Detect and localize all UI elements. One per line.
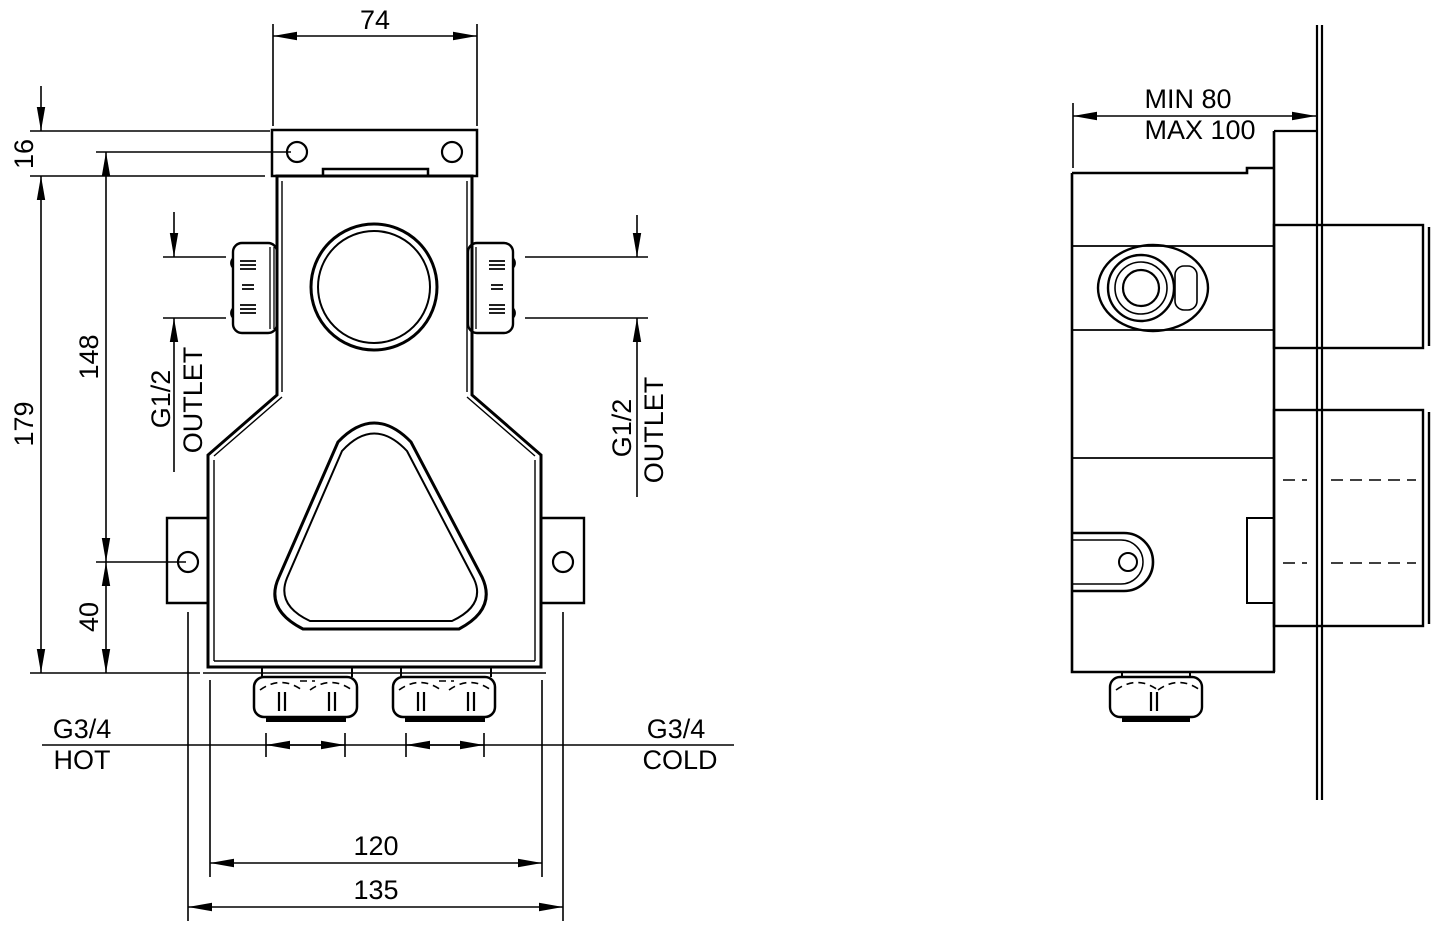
label-outlet-left-text: OUTLET bbox=[178, 347, 208, 454]
label-outlet-left-thread: G1/2 bbox=[146, 370, 176, 429]
label-hot-text: HOT bbox=[54, 745, 111, 775]
front-view bbox=[167, 130, 584, 722]
label-cold-thread: G3/4 bbox=[647, 714, 706, 744]
valve-installation-drawing: 74 16 179 148 40 G1/2 OUTLET G1/2 OUTLET… bbox=[0, 0, 1445, 934]
label-dim-40: 40 bbox=[74, 602, 104, 632]
dim-top-width bbox=[273, 24, 477, 126]
label-dim-74: 74 bbox=[360, 5, 390, 35]
wall-line bbox=[1317, 25, 1322, 800]
cartridge-opening bbox=[311, 224, 437, 350]
inlet-nut-side bbox=[1110, 672, 1202, 722]
label-outlet-right-text: OUTLET bbox=[639, 377, 669, 484]
inlet-nut-hot bbox=[254, 667, 357, 722]
front-view-dimensions bbox=[30, 24, 734, 921]
label-depth-max: MAX 100 bbox=[1144, 115, 1255, 145]
fixing-tab-right bbox=[541, 518, 584, 603]
inlet-nut-cold bbox=[393, 667, 495, 722]
trim-box-bottom bbox=[1274, 410, 1429, 626]
technical-drawing-page: 74 16 179 148 40 G1/2 OUTLET G1/2 OUTLET… bbox=[0, 0, 1445, 934]
label-dim-120: 120 bbox=[353, 831, 398, 861]
bracket-screw-hole-right bbox=[442, 142, 462, 162]
outlet-fitting-left bbox=[231, 243, 277, 333]
label-outlet-right-thread: G1/2 bbox=[607, 399, 637, 458]
label-dim-179: 179 bbox=[9, 401, 39, 446]
diverter-opening bbox=[275, 423, 486, 629]
label-cold-text: COLD bbox=[642, 745, 717, 775]
label-dim-16: 16 bbox=[9, 139, 39, 169]
fixing-tab-hole-right bbox=[553, 552, 573, 572]
outlet-boss-side bbox=[1098, 245, 1208, 331]
drawing-labels: 74 16 179 148 40 G1/2 OUTLET G1/2 OUTLET… bbox=[9, 5, 1256, 905]
label-dim-135: 135 bbox=[353, 875, 398, 905]
label-hot-thread: G3/4 bbox=[53, 714, 112, 744]
label-depth-min: MIN 80 bbox=[1144, 84, 1231, 114]
fixing-tab-left bbox=[167, 518, 208, 603]
inlet-thread-dims bbox=[42, 733, 734, 757]
label-dim-148: 148 bbox=[74, 334, 104, 379]
fixing-tab-side bbox=[1247, 518, 1274, 603]
outlet-fitting-right bbox=[468, 243, 515, 333]
trim-box-top bbox=[1274, 225, 1429, 348]
top-mounting-bracket bbox=[272, 130, 477, 176]
mounting-ear-side bbox=[1073, 533, 1153, 591]
